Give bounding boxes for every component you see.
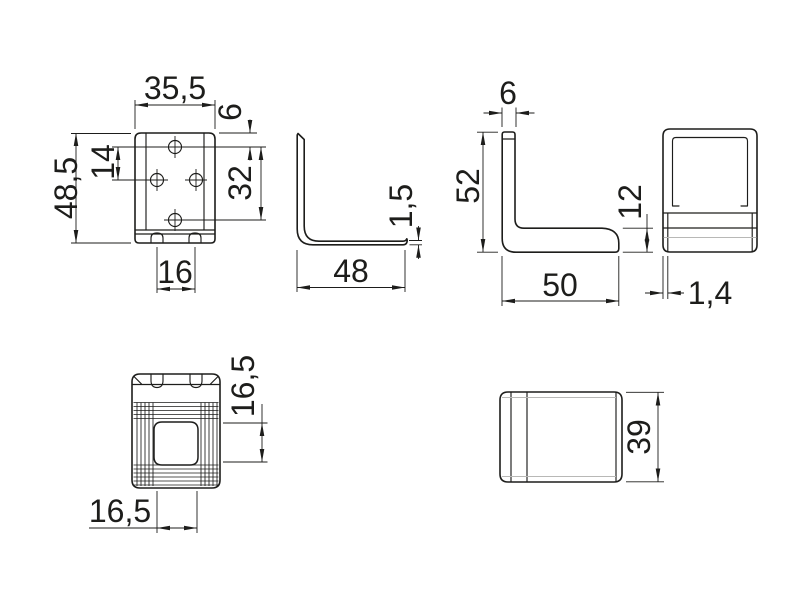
bracket-front-view: 35,5 48,5 14 6 32 16 — [48, 70, 266, 293]
plan-tabs — [151, 374, 202, 388]
cover-side-view: 39 — [500, 392, 664, 482]
dim-label-front-hole-span: 32 — [222, 165, 258, 201]
cover-front-inner-walls — [673, 138, 748, 207]
dimension-arrowhead — [481, 239, 486, 252]
dim-label-cover-wall: 1,4 — [688, 275, 732, 311]
dimension-arrowhead — [260, 423, 265, 436]
dimension-arrowhead — [259, 207, 264, 220]
cover-side-walls — [511, 392, 616, 481]
dim-label-profile-length: 50 — [542, 267, 578, 303]
dim-label-front-height: 48,5 — [48, 157, 84, 219]
dim-label-front-tab-spacing: 16 — [157, 254, 193, 290]
dimension-arrowhead — [668, 291, 681, 296]
dim-label-profile-lip: 12 — [612, 184, 648, 220]
dimension-arrowhead — [392, 285, 405, 290]
dimension-arrowhead — [248, 147, 253, 160]
dim-label-side-thickness: 1,5 — [383, 184, 419, 228]
dim-label-profile-flange: 6 — [499, 75, 517, 111]
dim-label-cover-side-height: 39 — [621, 419, 657, 455]
dim-label-plan-opening-h: 16,5 — [225, 355, 261, 417]
dimension-arrowhead — [489, 111, 502, 116]
bracket-plan-view: 16,5 16,5 — [89, 355, 268, 533]
plan-window — [154, 422, 198, 465]
cover-side-outline — [500, 392, 622, 482]
bracket-side-view: 1,5 48 — [297, 134, 422, 293]
dimension-arrowhead — [656, 393, 661, 406]
dim-label-plan-opening-w: 16,5 — [89, 493, 151, 529]
dimension-arrowhead — [259, 147, 264, 160]
dim-label-front-top-offset: 6 — [212, 103, 248, 121]
dimension-arrowhead — [74, 133, 79, 146]
cover-front-ribs — [663, 213, 757, 252]
dimension-arrowhead — [650, 291, 663, 296]
dimension-arrowhead — [416, 228, 421, 241]
dimension-arrowhead — [502, 299, 515, 304]
profile-outline — [502, 132, 619, 252]
dim-label-side-depth: 48 — [333, 253, 369, 289]
dim-label-profile-height: 52 — [450, 168, 486, 204]
plan-top-edge-lines — [133, 377, 220, 385]
dimension-arrowhead — [481, 132, 486, 145]
dimension-arrowhead — [416, 245, 421, 258]
bracket-profile-view: 6 52 12 50 — [450, 75, 653, 306]
cover-front-view: 1,4 — [645, 129, 757, 311]
dimension-arrowhead — [260, 449, 265, 462]
dimension-arrowhead — [184, 526, 197, 531]
dimension-arrowhead — [248, 120, 253, 133]
dimension-arrowhead — [516, 111, 529, 116]
dimension-arrowhead — [656, 469, 661, 482]
dimension-arrowhead — [74, 230, 79, 243]
dimension-arrowhead — [297, 285, 310, 290]
cover-side-light-lines — [502, 398, 616, 477]
dimension-arrowhead — [135, 103, 148, 108]
dimension-arrowhead — [645, 239, 650, 252]
dim-label-front-width: 35,5 — [144, 70, 206, 106]
technical-drawing-page: 35,5 48,5 14 6 32 16 1,5 48 6 52 12 50 1… — [0, 0, 800, 600]
cover-front-outline — [663, 129, 757, 252]
dim-label-front-hole-pitch: 14 — [85, 144, 121, 180]
front-holes — [151, 141, 203, 227]
technical-drawing-canvas: 35,5 48,5 14 6 32 16 1,5 48 6 52 12 50 1… — [0, 0, 800, 600]
dimension-arrowhead — [157, 526, 170, 531]
dimension-arrows — [74, 103, 681, 531]
dimension-arrowhead — [606, 299, 619, 304]
